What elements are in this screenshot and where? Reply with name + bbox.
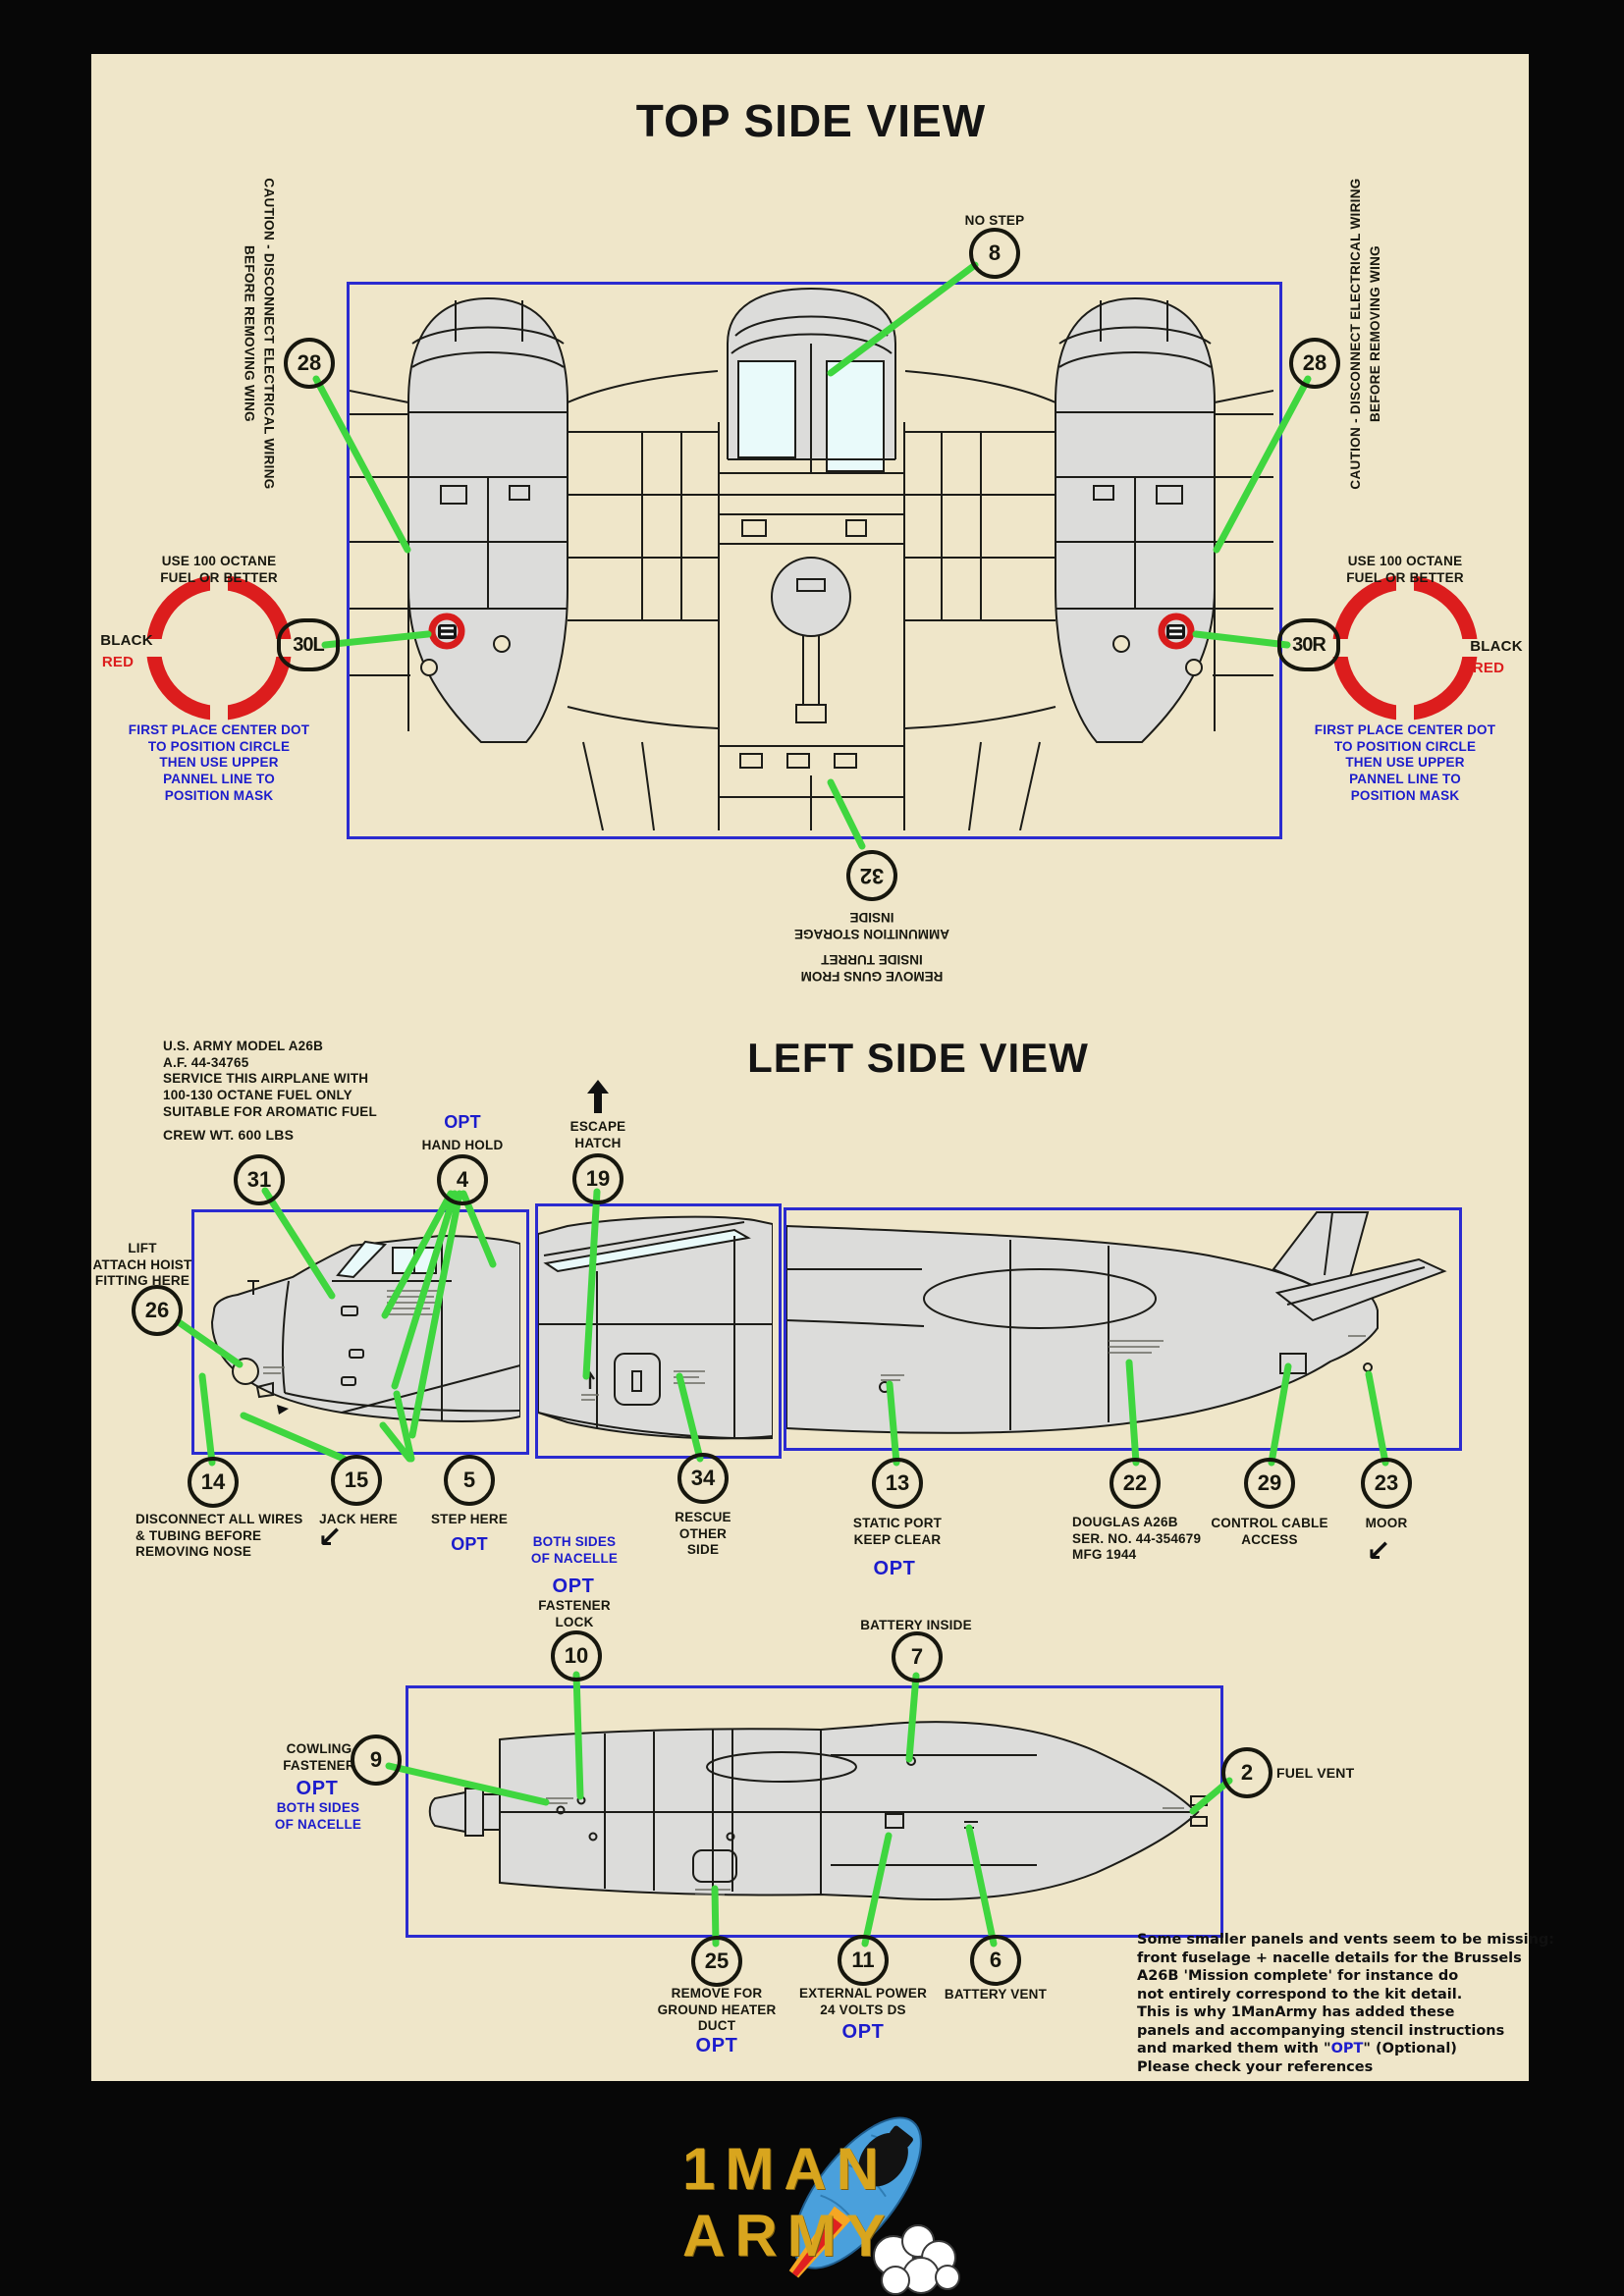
- static-port-opt-label: OPT: [874, 1557, 916, 1581]
- caution-wiring-left: CAUTION - DISCONNECT ELECTRICAL WIRING B…: [239, 103, 279, 564]
- callout-23: 23: [1361, 1458, 1412, 1509]
- nacelle-opt-label-10: OPT: [553, 1575, 595, 1599]
- turret-storage-label: AMMUNITION STORAGE INSIDE: [794, 908, 949, 940]
- control-cable-label: CONTROL CABLE ACCESS: [1211, 1516, 1327, 1548]
- fuel-black-label-left: BLACK: [100, 632, 153, 651]
- missing-panels-note-line8: Please check your references: [1137, 2059, 1373, 2075]
- callout-22: 22: [1110, 1458, 1161, 1509]
- external-power-label: EXTERNAL POWER 24 VOLTS DS: [799, 1986, 927, 2018]
- aircraft-bottom-view-drawing: [408, 1688, 1215, 1929]
- callout-11: 11: [838, 1935, 889, 1986]
- jack-here-arrow-icon: ↙: [317, 1523, 342, 1553]
- douglas-serial-label: DOUGLAS A26B SER. NO. 44-354679 MFG 1944: [1072, 1515, 1201, 1564]
- fuel-note-left: FIRST PLACE CENTER DOT TO POSITION CIRCL…: [129, 722, 309, 805]
- fuel-header-right: USE 100 OCTANE FUEL OR BETTER: [1346, 554, 1464, 586]
- heater-duct-label: REMOVE FOR GROUND HEATER DUCT: [658, 1986, 777, 2035]
- fuel-note-right: FIRST PLACE CENTER DOT TO POSITION CIRCL…: [1315, 722, 1495, 805]
- handhold-opt-label: OPT: [444, 1111, 481, 1133]
- callout-19: 19: [572, 1153, 623, 1204]
- fuel-header-left: USE 100 OCTANE FUEL OR BETTER: [160, 554, 278, 586]
- instruction-sheet-page: TOP SIDE VIEW LEFT SIDE VIEW: [0, 0, 1624, 2296]
- nacelle-both-sides-label-10: BOTH SIDES OF NACELLE: [531, 1534, 618, 1567]
- callout-13: 13: [872, 1458, 923, 1509]
- callout-7: 7: [892, 1631, 943, 1682]
- moor-label: MOOR: [1366, 1516, 1408, 1532]
- static-port-label: STATIC PORT KEEP CLEAR: [853, 1516, 942, 1548]
- note-line7-pre: and marked them with ": [1137, 2041, 1331, 2056]
- callout-6: 6: [970, 1935, 1021, 1986]
- callout-5: 5: [444, 1455, 495, 1506]
- handhold-label: HAND HOLD: [422, 1138, 504, 1154]
- fuel-ring-left: [146, 575, 292, 721]
- callout-26: 26: [132, 1285, 183, 1336]
- note-line7-opt: OPT: [1331, 2041, 1364, 2056]
- aircraft-side-mid-drawing: [538, 1206, 773, 1450]
- fuel-red-label-right: RED: [1473, 660, 1504, 678]
- escape-hatch-arrow-icon: [586, 1080, 610, 1113]
- fuel-vent-label: FUEL VENT: [1276, 1765, 1354, 1782]
- caution-wiring-right: CAUTION - DISCONNECT ELECTRICAL WIRING B…: [1346, 103, 1386, 564]
- cowling-opt-label: OPT: [297, 1777, 339, 1801]
- step-here-opt-label: OPT: [451, 1533, 488, 1555]
- moor-arrow-icon: ↙: [1366, 1537, 1390, 1567]
- lift-hoist-label: LIFT ATTACH HOIST FITTING HERE: [93, 1241, 192, 1290]
- logo-line2: ARMY: [682, 2202, 895, 2269]
- note-line7-post: " (Optional): [1363, 2041, 1457, 2056]
- callout-4: 4: [437, 1154, 488, 1205]
- side-view-title: LEFT SIDE VIEW: [747, 1035, 1089, 1082]
- step-here-label: STEP HERE: [431, 1512, 508, 1528]
- callout-32: 32: [846, 850, 897, 901]
- callout-15: 15: [331, 1455, 382, 1506]
- callout-8: 8: [969, 228, 1020, 279]
- rescue-other-side-label: RESCUE OTHER SIDE: [675, 1510, 731, 1559]
- aircraft-top-view-drawing: [350, 285, 1273, 830]
- callout-29: 29: [1244, 1458, 1295, 1509]
- missing-panels-note-line7: and marked them with "OPT" (Optional): [1137, 2041, 1457, 2056]
- fuel-black-label-right: BLACK: [1470, 638, 1523, 657]
- callout-28-right: 28: [1289, 338, 1340, 389]
- cowling-both-sides-label: BOTH SIDES OF NACELLE: [275, 1800, 361, 1833]
- missing-panels-note-body: Some smaller panels and vents seem to be…: [1137, 1931, 1554, 2040]
- callout-25: 25: [691, 1936, 742, 1987]
- turret-remove-label: REMOVE GUNS FROM INSIDE TURRET: [801, 951, 944, 984]
- logo-line1: 1MAN: [682, 2135, 889, 2203]
- escape-hatch-label: ESCAPE HATCH: [570, 1119, 626, 1151]
- callout-14: 14: [188, 1457, 239, 1508]
- fuel-ring-right: [1332, 575, 1478, 721]
- callout-34: 34: [677, 1453, 729, 1504]
- callout-31: 31: [234, 1154, 285, 1205]
- cowling-fastener-label: COWLING FASTENER: [283, 1741, 355, 1774]
- callout-28-left: 28: [284, 338, 335, 389]
- fastener-lock-label: FASTENER LOCK: [538, 1598, 611, 1630]
- top-view-title: TOP SIDE VIEW: [636, 94, 986, 147]
- turret-callout-group: REMOVE GUNS FROM INSIDE TURRET AMMUNITIO…: [754, 850, 990, 984]
- army-stencil-text: U.S. ARMY MODEL A26B A.F. 44-34765 SERVI…: [163, 1039, 377, 1121]
- aircraft-side-tail-drawing: [786, 1210, 1453, 1442]
- heater-duct-opt-label: OPT: [696, 2034, 738, 2058]
- battery-vent-label: BATTERY VENT: [945, 1987, 1047, 2003]
- aircraft-side-nose-drawing: [194, 1212, 520, 1446]
- fuel-red-label-left: RED: [102, 654, 134, 672]
- callout-9: 9: [351, 1735, 402, 1786]
- callout-10: 10: [551, 1630, 602, 1682]
- disconnect-wires-label: DISCONNECT ALL WIRES & TUBING BEFORE REM…: [135, 1512, 303, 1561]
- external-power-opt-label: OPT: [842, 2020, 885, 2045]
- callout-2: 2: [1221, 1747, 1272, 1798]
- crew-weight-text: CREW WT. 600 LBS: [163, 1127, 294, 1144]
- callout-30R: 30R: [1277, 618, 1340, 671]
- callout-30L: 30L: [277, 618, 340, 671]
